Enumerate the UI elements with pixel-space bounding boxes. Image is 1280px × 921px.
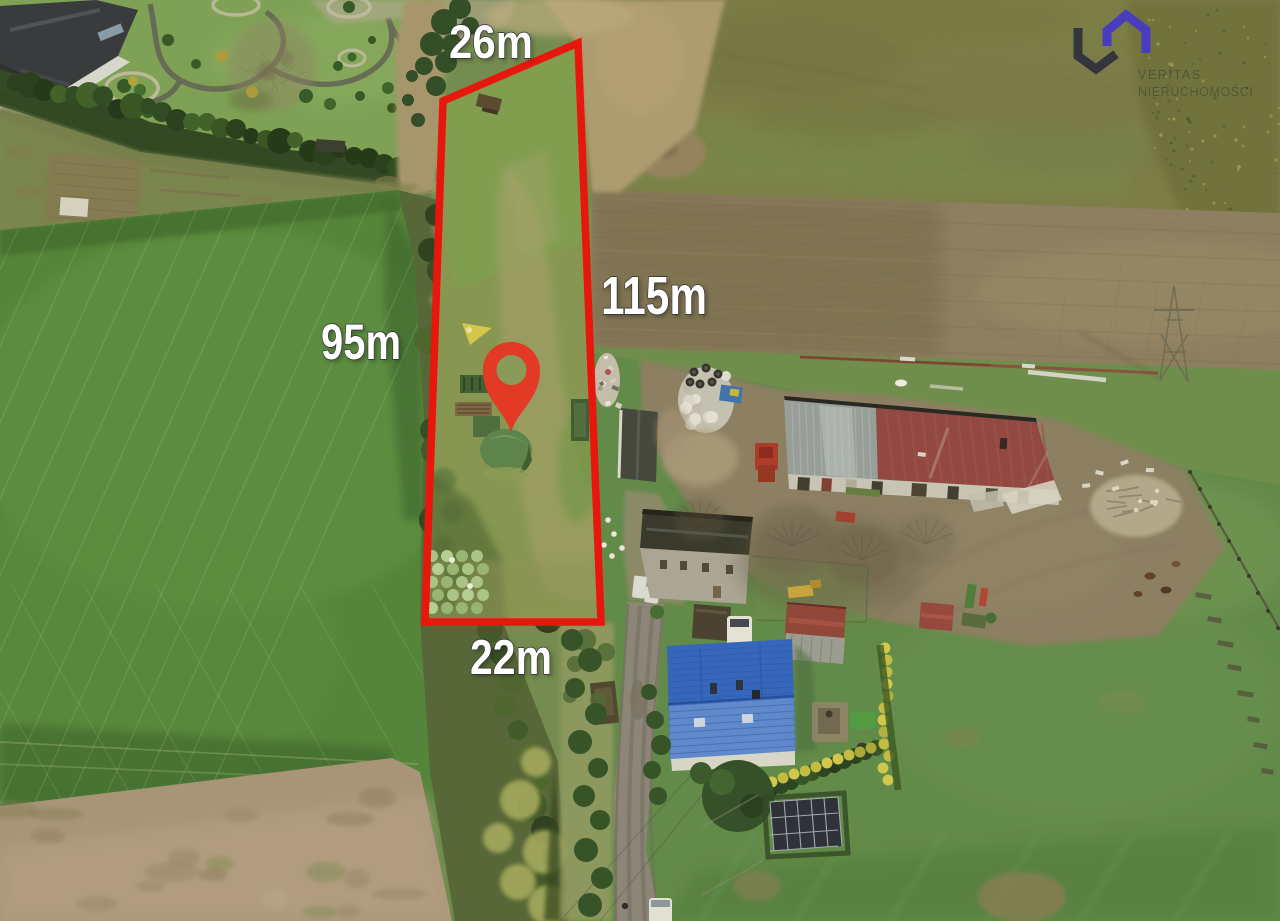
svg-text:22m: 22m (470, 631, 552, 685)
svg-text:26m: 26m (449, 15, 533, 68)
svg-text:VERITAS: VERITAS (1138, 68, 1202, 82)
svg-text:115m: 115m (601, 266, 707, 326)
svg-text:95m: 95m (321, 314, 401, 370)
svg-text:NIERUCHOMOŚCI: NIERUCHOMOŚCI (1138, 84, 1253, 99)
